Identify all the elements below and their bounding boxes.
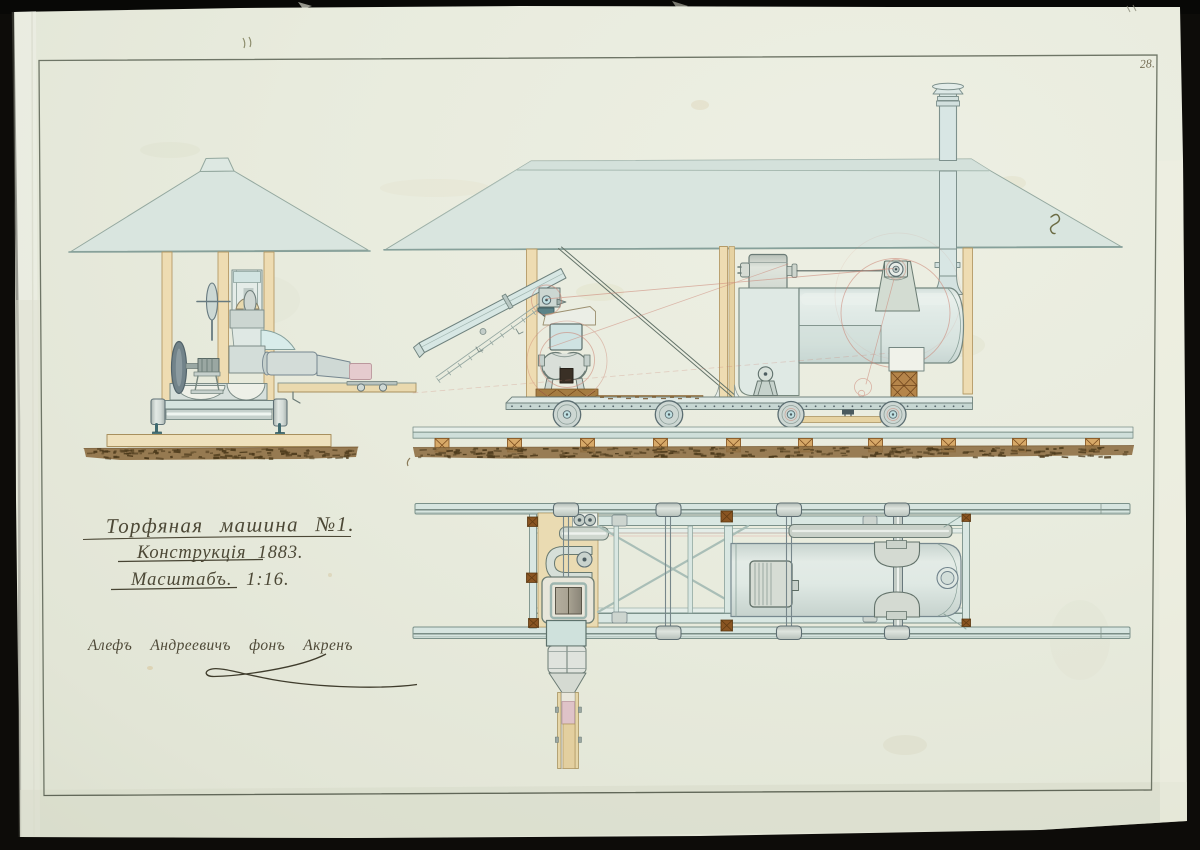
svg-text:28.: 28. <box>1139 56 1155 71</box>
svg-text:Алефъ Андреевичъ фонъ Акренъ: Алефъ Андреевичъ фонъ Акренъ <box>87 637 353 654</box>
svg-text:Торфяная машина №1.: Торфяная машина №1. <box>106 512 355 538</box>
svg-text:Масштабъ. 1:16.: Масштабъ. 1:16. <box>130 570 290 590</box>
